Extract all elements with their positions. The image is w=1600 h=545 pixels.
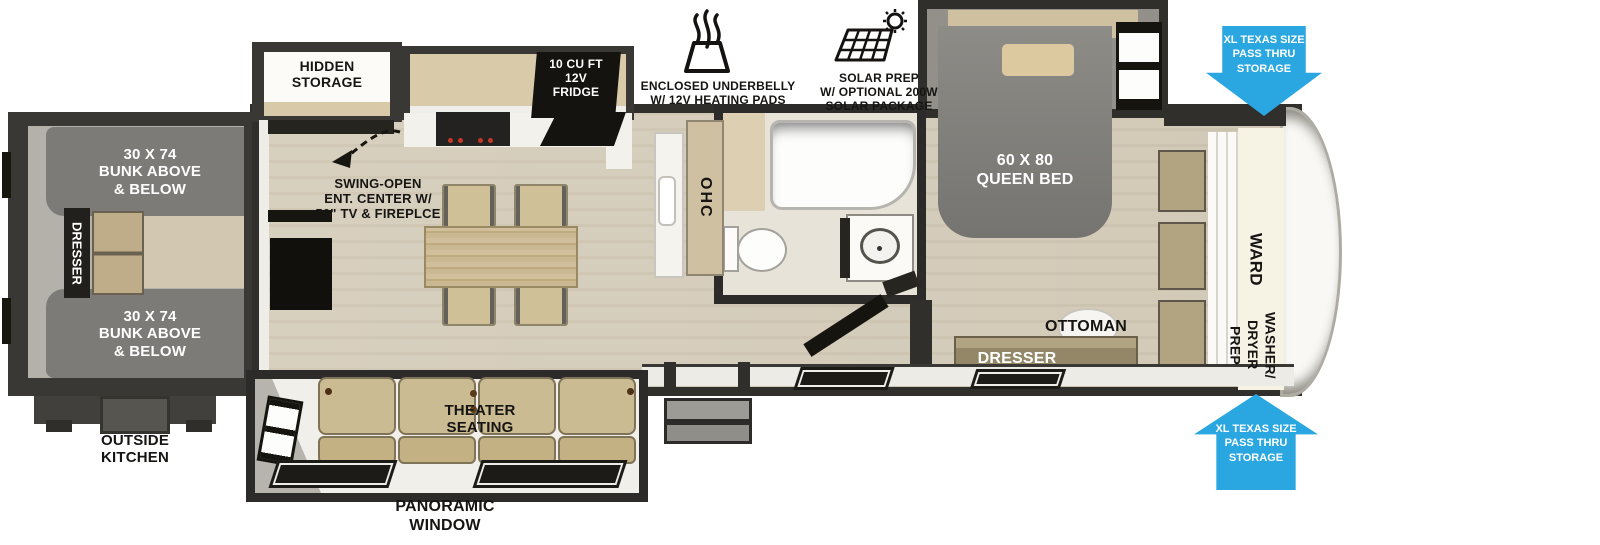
- cupholder: [470, 390, 477, 397]
- bunkhouse-cabinet: [92, 211, 144, 295]
- floorplan-canvas: 60 X 80 QUEEN BED THEATER SEATING PANORA…: [0, 0, 1600, 545]
- overhead-cabinet: OHC: [686, 120, 724, 276]
- hidden-storage-shelf: [264, 102, 390, 116]
- cupholder: [627, 388, 634, 395]
- underbelly-label: ENCLOSED UNDERBELLY W/ 12V HEATING PADS: [632, 80, 804, 108]
- compartment-foot: [186, 420, 212, 432]
- dining-chair: [514, 184, 568, 228]
- cupholder: [325, 388, 332, 395]
- theater-seat-front: [558, 436, 636, 464]
- pass-thru-arrow-bottom: XL TEXAS SIZE PASS THRU STORAGE: [1194, 394, 1318, 490]
- hidden-storage-label: HIDDEN STORAGE: [264, 58, 390, 90]
- bedroom-bottom-window: [974, 372, 1063, 386]
- outside-kitchen-compartment: [100, 396, 170, 434]
- theater-seat-back: [318, 377, 396, 435]
- outside-kitchen-label: OUTSIDE KITCHEN: [68, 432, 202, 467]
- sink-faucet: [877, 246, 882, 251]
- cooktop-knob: [478, 138, 483, 143]
- bunkhouse-end-window: [2, 298, 11, 344]
- wardrobe-shelf: [1158, 300, 1206, 372]
- cooktop-knob: [488, 138, 493, 143]
- hallway-wall-stub: [910, 300, 932, 370]
- bedroom-window-right: [1116, 22, 1162, 110]
- bathtub: [770, 120, 916, 210]
- fridge-label: 10 CU FT 12V FRIDGE: [534, 58, 618, 100]
- dining-table: [424, 226, 578, 288]
- bunk-dresser-label: DRESSER: [70, 222, 85, 285]
- dining-chair: [442, 286, 496, 326]
- solar-panel-sun-icon: [832, 8, 910, 72]
- bed-pillow: [1002, 44, 1074, 76]
- cooktop-knob: [458, 138, 463, 143]
- entry-steps-lower: [664, 422, 752, 444]
- theater-seat-back: [558, 377, 636, 435]
- ent-center-label: SWING-OPEN ENT. CENTER W/ 50" TV & FIREP…: [302, 176, 454, 221]
- panoramic-window-glass: [272, 463, 393, 485]
- bunkhouse-dresser: DRESSER: [64, 208, 90, 298]
- panoramic-window-glass: [476, 463, 623, 485]
- dining-chair: [514, 286, 568, 326]
- theater-seat-front: [398, 436, 476, 464]
- washer-dryer-prep-label: WASHER/ DRYER PREP: [1226, 296, 1279, 394]
- ward-label: WARD: [1246, 222, 1266, 296]
- front-cap-nose: [1280, 107, 1342, 397]
- wardrobe-shelf: [1158, 222, 1206, 290]
- bunkhouse-floor-wood: [142, 216, 244, 288]
- bunk-bottom-label: 30 X 74 BUNK ABOVE & BELOW: [70, 308, 230, 360]
- solar-label: SOLAR PREP W/ OPTIONAL 200W SOLAR PACKAG…: [798, 72, 960, 114]
- ottoman-label: OTTOMAN: [1028, 318, 1144, 337]
- pass-thru-bottom-label: XL TEXAS SIZE PASS THRU STORAGE: [1194, 394, 1318, 465]
- bunk-top-label: 30 X 74 BUNK ABOVE & BELOW: [70, 146, 230, 198]
- bottom-window: [797, 370, 891, 387]
- pass-thru-top-label: XL TEXAS SIZE PASS THRU STORAGE: [1206, 26, 1322, 76]
- ohc-label: OHC: [696, 177, 714, 219]
- living-slide-wall: [259, 120, 269, 372]
- entry-opening-stub-left: [664, 362, 676, 388]
- pass-thru-arrow-top: XL TEXAS SIZE PASS THRU STORAGE: [1206, 26, 1322, 116]
- entry-opening-stub-right: [738, 362, 750, 388]
- cooktop-knob: [448, 138, 453, 143]
- theater-seating-label: THEATER SEATING: [395, 402, 565, 437]
- compartment-foot: [46, 420, 72, 432]
- swing-arrow-icon: [330, 126, 404, 172]
- kitchen-sink: [658, 176, 676, 226]
- entry-steps-upper: [664, 398, 752, 422]
- bunkhouse-end-window: [2, 152, 11, 198]
- heat-waves-icon: [676, 8, 738, 76]
- bedroom-dresser-label: DRESSER: [962, 350, 1072, 369]
- bathroom-cabinet: [723, 113, 765, 211]
- queen-bed-label: 60 X 80 QUEEN BED: [950, 152, 1100, 189]
- theater-seat-front: [478, 436, 556, 464]
- wardrobe-shelf: [1158, 150, 1206, 212]
- tv-entertainment-center: [270, 238, 332, 310]
- panoramic-window-label: PANORAMIC WINDOW: [330, 498, 560, 535]
- vanity-side-panel: [840, 218, 850, 278]
- toilet: [737, 228, 787, 272]
- theater-seat-front: [318, 436, 396, 464]
